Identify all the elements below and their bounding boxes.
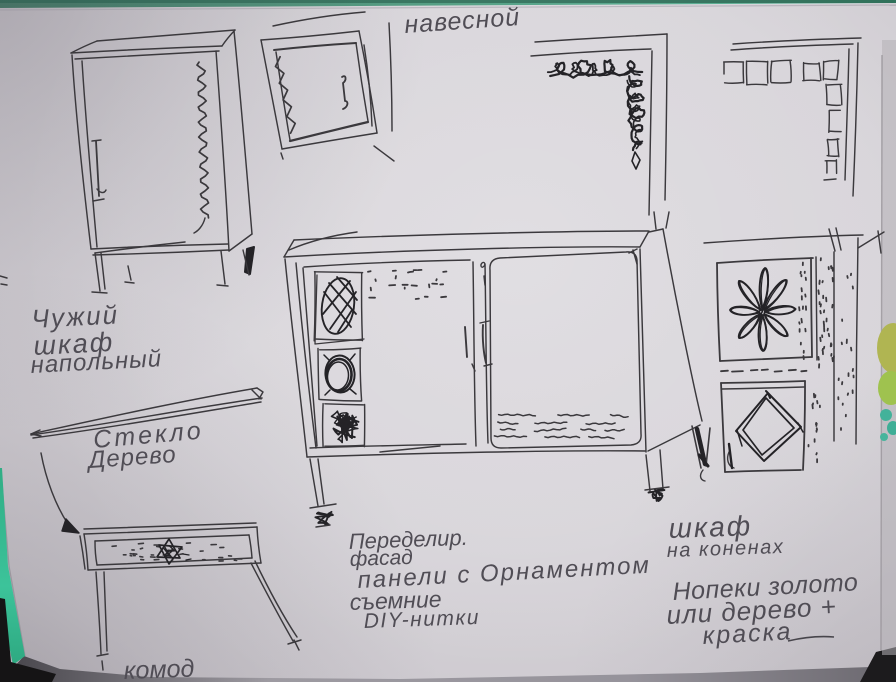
svg-text:DIY-нитки: DIY-нитки <box>363 606 480 633</box>
svg-text:комод: комод <box>123 655 195 682</box>
svg-text:краска: краска <box>702 617 793 650</box>
svg-text:на коненах: на коненах <box>666 536 784 562</box>
